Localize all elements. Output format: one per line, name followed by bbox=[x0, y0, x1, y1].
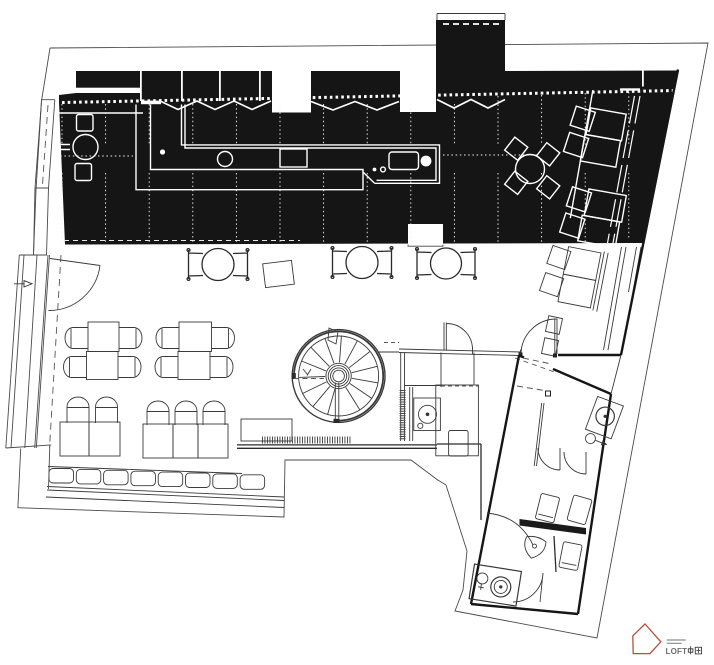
svg-text:LOFT: LOFT bbox=[666, 647, 688, 656]
